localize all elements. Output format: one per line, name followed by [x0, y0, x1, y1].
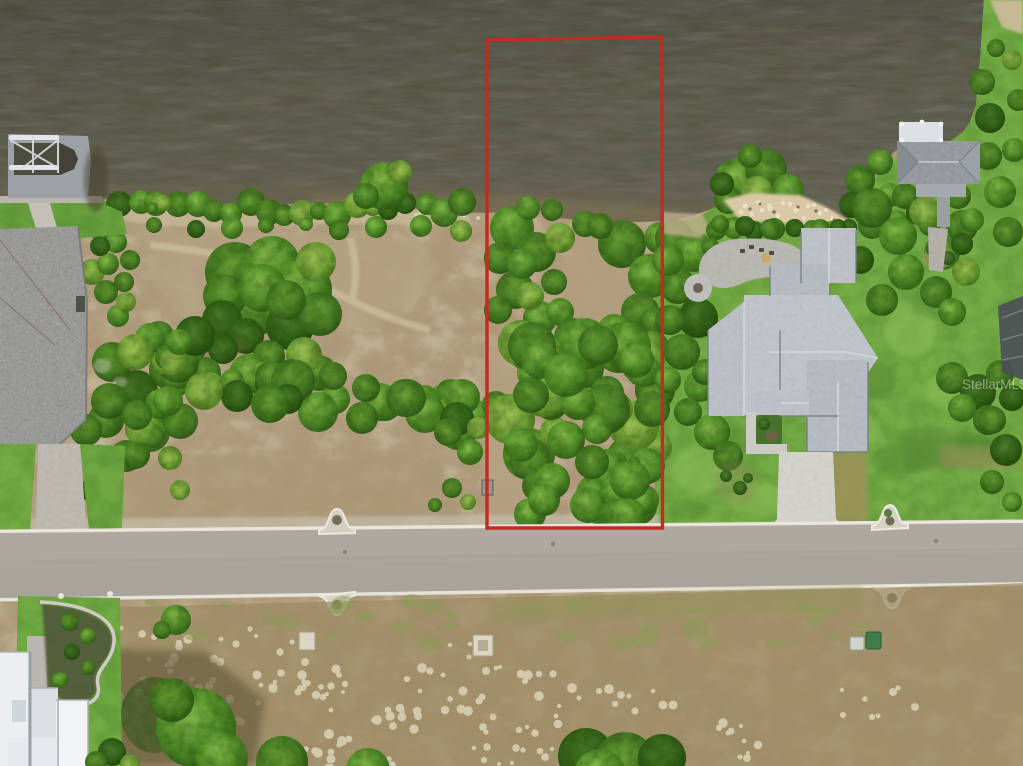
svg-text:StellarMLS: StellarMLS — [962, 377, 1023, 392]
